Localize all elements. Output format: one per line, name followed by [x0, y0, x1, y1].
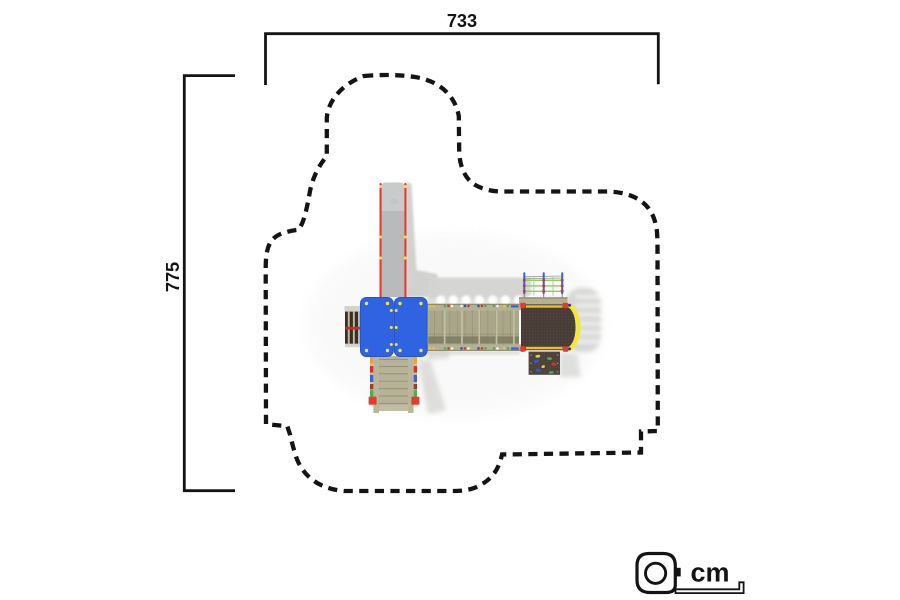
svg-text:733: 733 — [447, 11, 477, 31]
svg-text:cm: cm — [690, 558, 729, 588]
svg-text:775: 775 — [163, 262, 183, 292]
